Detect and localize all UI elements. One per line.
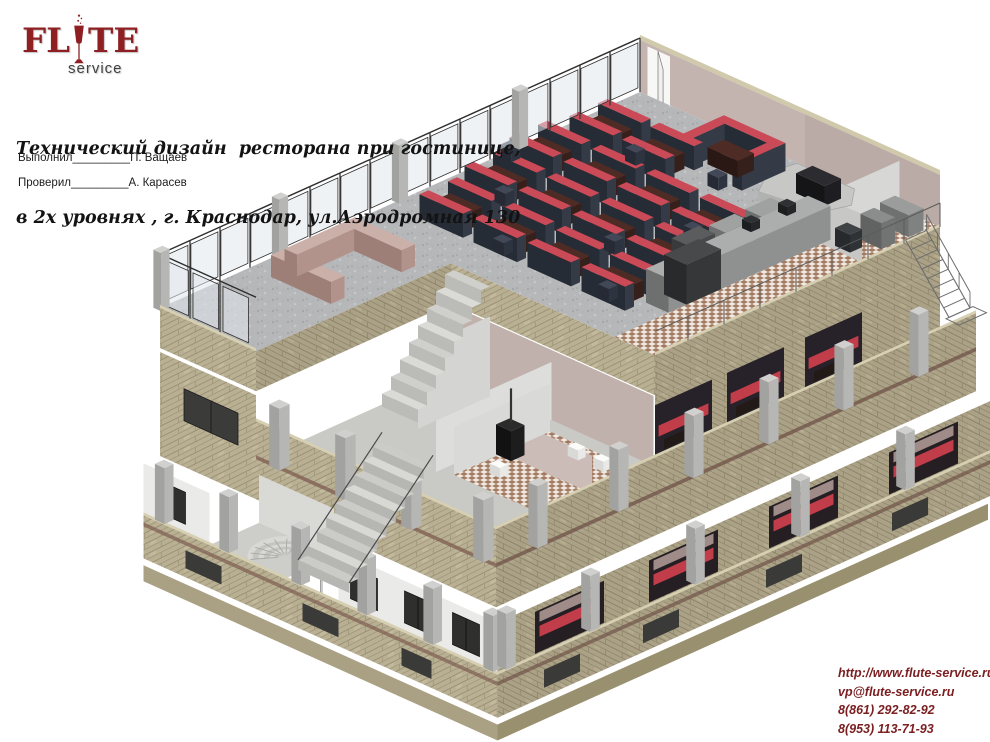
checked-label: Проверил (18, 177, 71, 189)
website-link[interactable]: http://www.flute-service.ru (838, 664, 990, 683)
contact-block: http://www.flute-service.ru vp@flute-ser… (838, 664, 990, 738)
email-link[interactable]: vp@flute-service.ru (838, 683, 990, 702)
logo-text-right: TE (88, 21, 139, 61)
phone-primary: 8(861) 292-82-92 (838, 701, 990, 720)
logo-text-left: FL (22, 21, 70, 61)
performed-label: Выполнил (18, 152, 73, 164)
checked-name: А. Карасев (129, 177, 187, 189)
approval-block: Выполнил_________П. Ващаев Проверил_____… (18, 152, 187, 202)
performed-name: П. Ващаев (130, 152, 187, 164)
logo: FL TE service (22, 12, 172, 96)
checked-signature-line: _________ (71, 177, 129, 189)
performed-signature-line: _________ (73, 152, 131, 164)
approval-checked: Проверил_________А. Карасев (18, 177, 187, 189)
approval-performed: Выполнил_________П. Ващаев (18, 152, 187, 164)
phone-secondary: 8(953) 113-71-93 (838, 720, 990, 739)
title-line-2: в 2х уровнях , г. Краснодар, ул.Аэродром… (16, 207, 521, 230)
design-sheet: FL TE service Технический дизайн рестора… (0, 0, 990, 742)
logo-subtitle: service (68, 60, 123, 77)
